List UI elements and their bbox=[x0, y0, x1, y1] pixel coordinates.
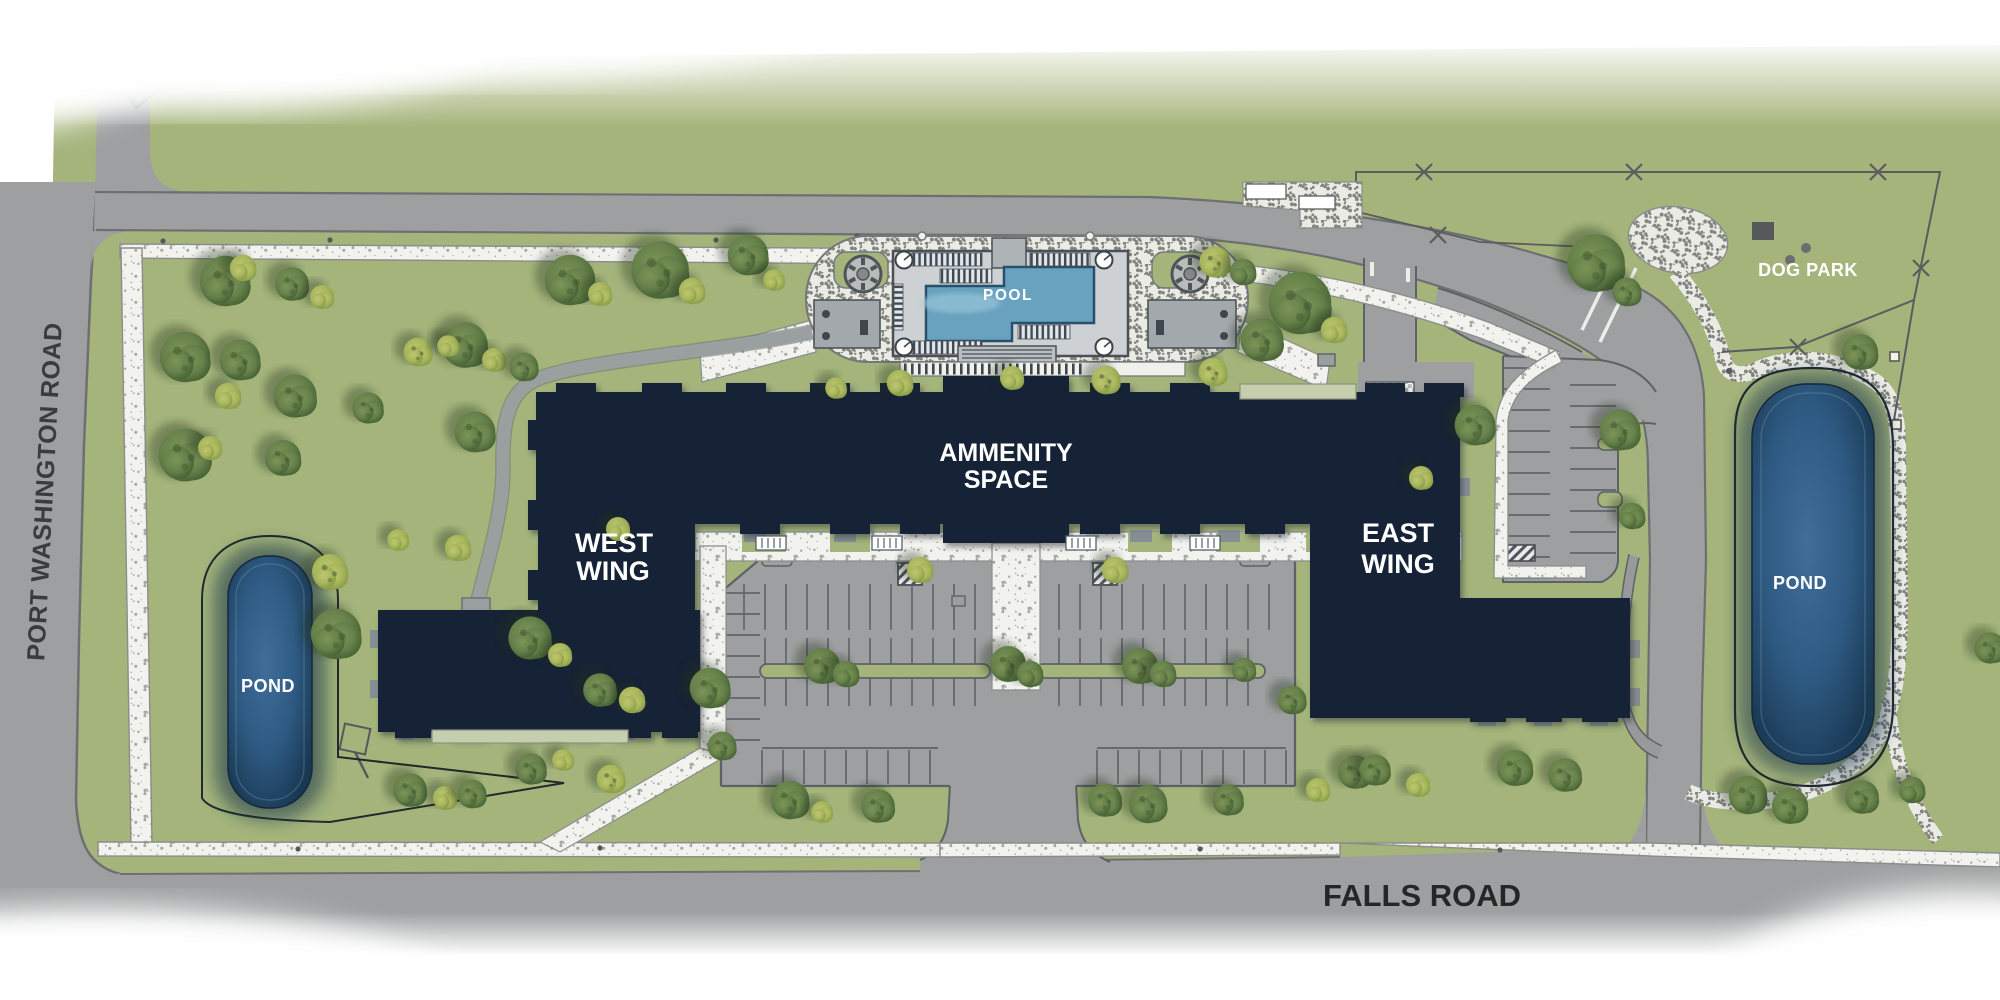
svg-text:POND: POND bbox=[1773, 573, 1827, 593]
svg-text:WING: WING bbox=[1361, 549, 1435, 579]
svg-text:POOL: POOL bbox=[983, 287, 1033, 304]
svg-text:FALLS ROAD: FALLS ROAD bbox=[1323, 878, 1521, 913]
svg-text:WING: WING bbox=[576, 556, 650, 586]
svg-text:EAST: EAST bbox=[1362, 518, 1435, 548]
svg-text:WEST: WEST bbox=[575, 528, 654, 558]
svg-text:DOG PARK: DOG PARK bbox=[1758, 260, 1858, 280]
svg-text:SPACE: SPACE bbox=[964, 466, 1048, 494]
svg-text:POND: POND bbox=[241, 676, 295, 696]
svg-text:AMMENITY: AMMENITY bbox=[939, 439, 1073, 467]
